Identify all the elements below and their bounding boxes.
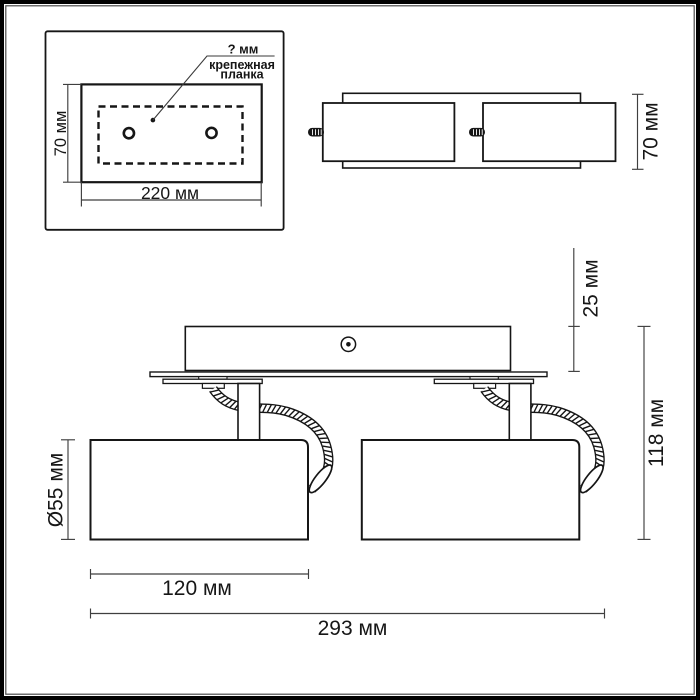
svg-text:220 мм: 220 мм — [141, 183, 199, 203]
svg-text:118 мм: 118 мм — [645, 399, 668, 467]
svg-text:Ø55 мм: Ø55 мм — [45, 453, 68, 527]
svg-text:планка: планка — [220, 68, 264, 82]
svg-text:70 мм: 70 мм — [52, 111, 70, 157]
svg-text:120 мм: 120 мм — [162, 577, 232, 600]
svg-text:25 мм: 25 мм — [580, 259, 603, 317]
svg-text:? мм: ? мм — [228, 42, 259, 57]
svg-text:293 мм: 293 мм — [318, 617, 388, 640]
svg-text:70 мм: 70 мм — [640, 102, 663, 160]
